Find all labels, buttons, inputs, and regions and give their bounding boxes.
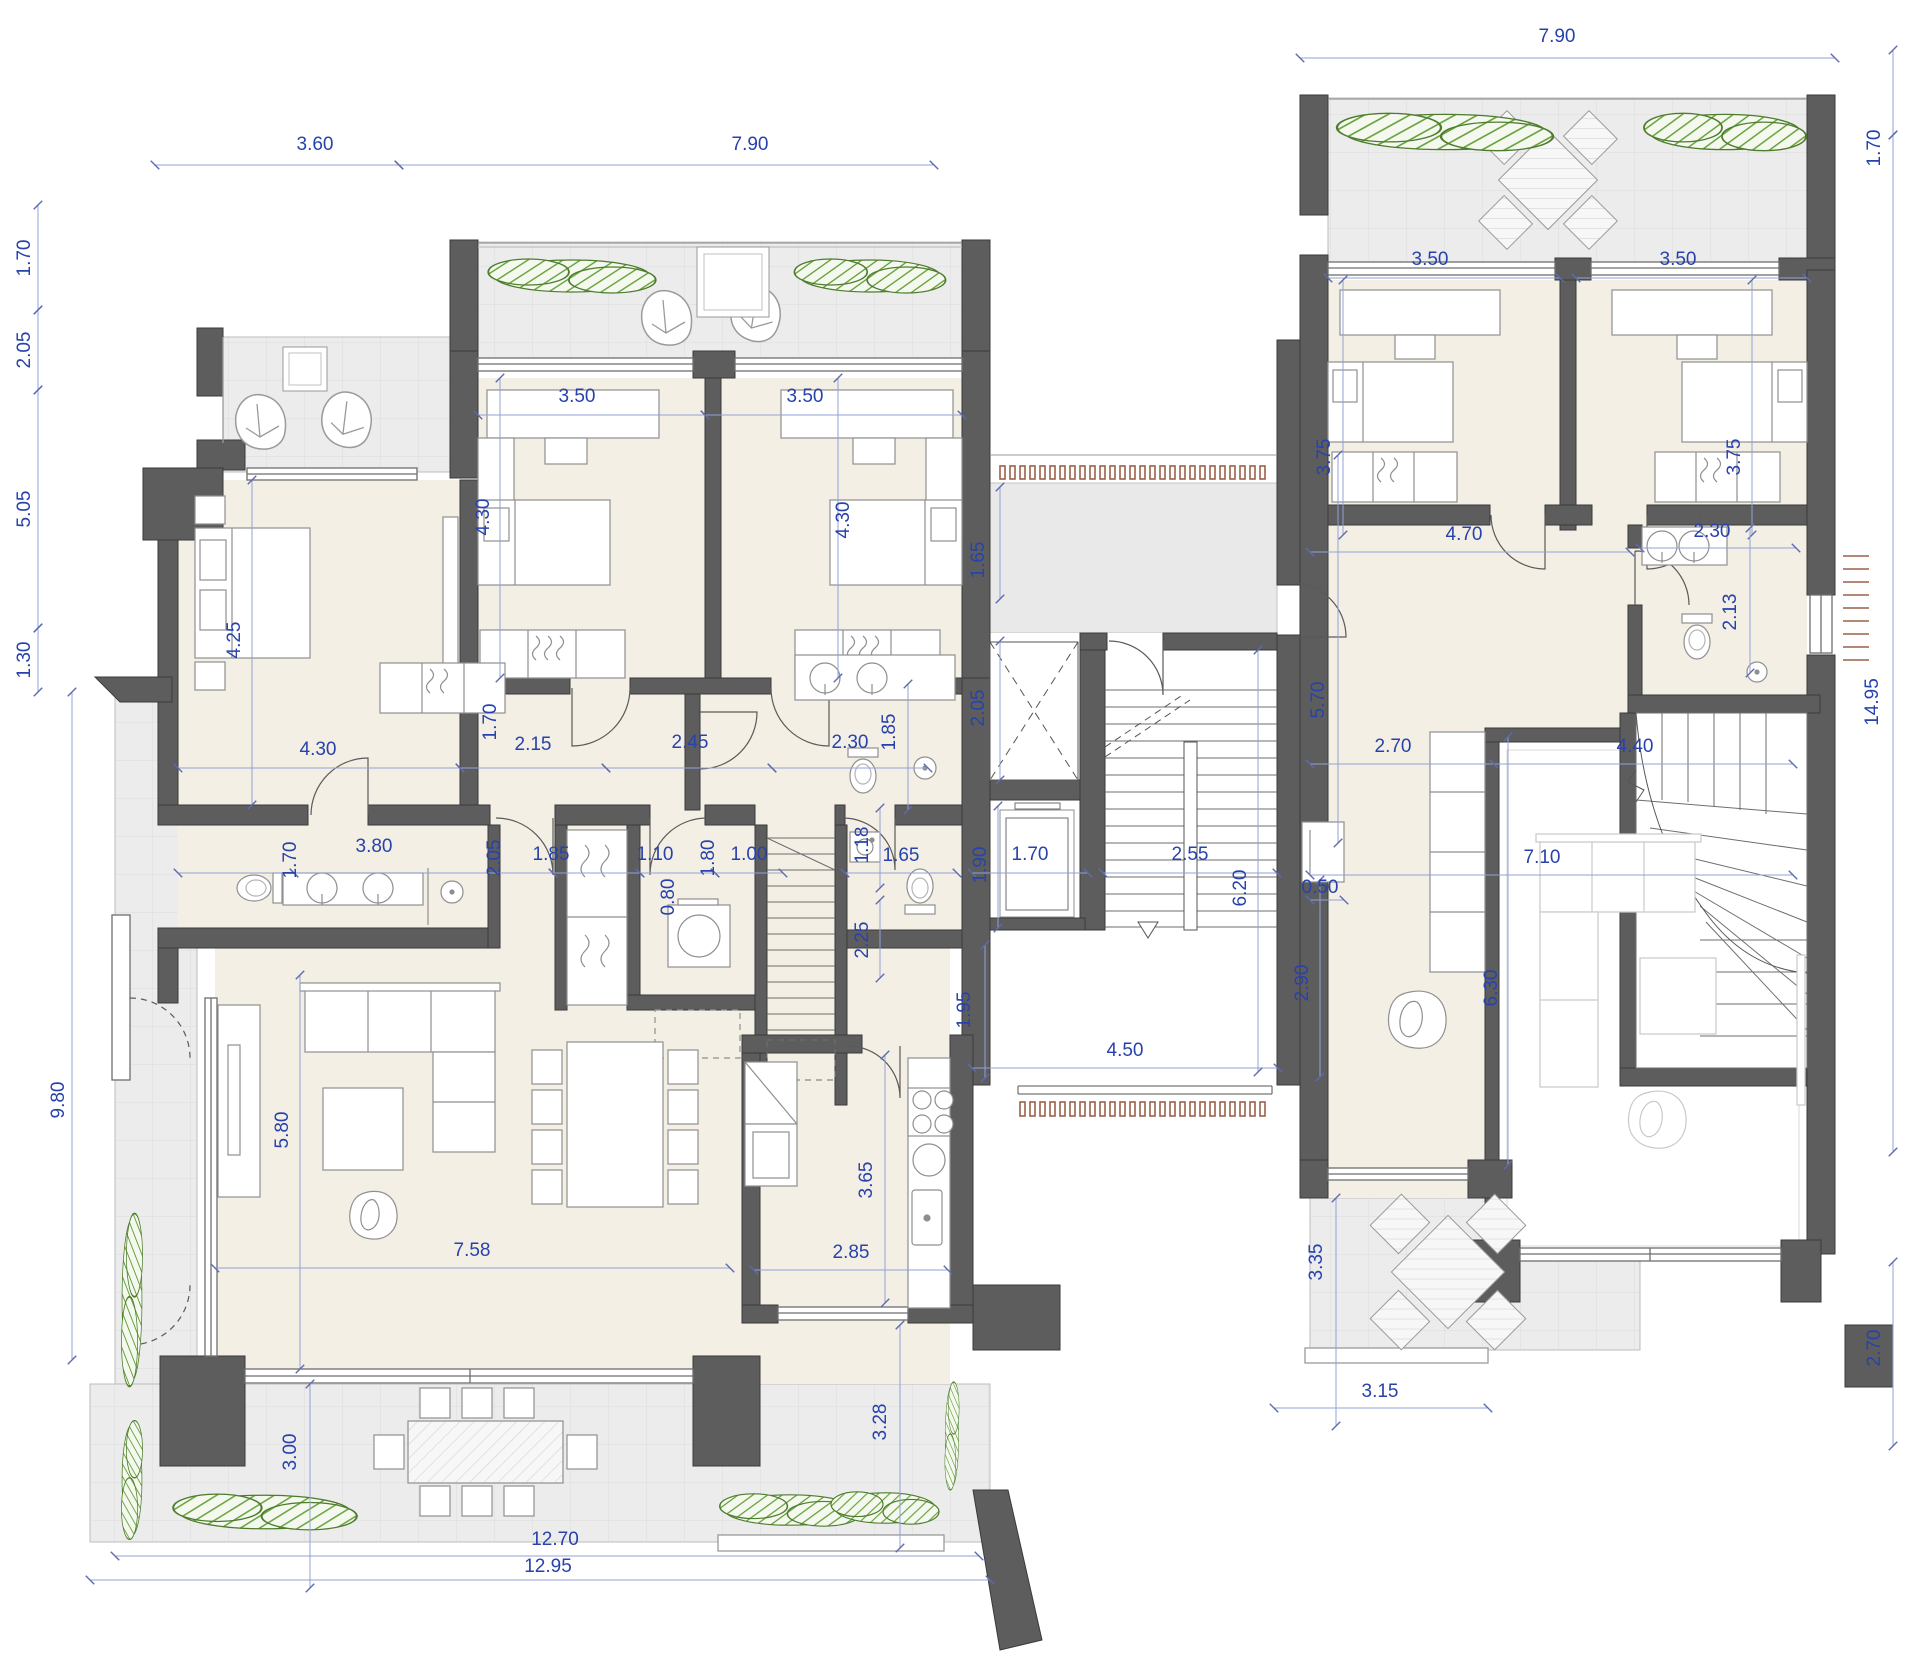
master-wardrobe [443,517,458,667]
deck-tick [1020,1102,1025,1116]
deck-tick [1140,1102,1145,1116]
deck-tick [1100,466,1105,479]
dimension-label: 4.30 [300,739,337,760]
dimension-label: 2.30 [1694,521,1731,542]
deck-tick [1200,466,1205,479]
floor-plan-sheet: 7.903.607.903.503.503.503.504.302.152.45… [0,0,1924,1658]
dimension-label: 4.30 [473,499,494,536]
deck-tick [1080,1102,1085,1116]
bridge-floor [990,390,1277,465]
dimension-label: 3.60 [297,134,334,155]
window [247,468,417,480]
dimension-label: 1.10 [637,844,674,865]
deck-tick-row-bottom [1020,1102,1265,1116]
dimension-label: 1.85 [533,844,570,865]
dimension-label: 3.50 [1660,249,1697,270]
dimension-label: 2.05 [484,840,505,877]
dimension-label: 3.28 [870,1404,891,1441]
dimension-label: 3.75 [1724,439,1745,476]
deck-tick [1250,1102,1255,1116]
dimension-label: 1.65 [968,542,989,579]
deck-tick [1210,466,1215,479]
deck-tick [1160,1102,1165,1116]
deck-tick [1190,1102,1195,1116]
dimension-label: 2.05 [968,690,989,727]
window [778,1307,908,1320]
deck-tick [1220,1102,1225,1116]
dimension-label: 2.55 [1172,844,1209,865]
deck-tick [1110,1102,1115,1116]
dimension-label: 4.70 [1446,524,1483,545]
floor-plan-canvas: 7.903.607.903.503.503.503.504.302.152.45… [0,0,1924,1658]
dimension-label: 3.35 [1306,1244,1327,1281]
dimension-label: 1.18 [852,827,873,864]
dimension-label: 12.70 [531,1529,579,1550]
dimension-label: 5.80 [272,1112,293,1149]
deck-tick [1240,466,1245,479]
dimension-label: 3.50 [787,386,824,407]
deck-tick [1030,1102,1035,1116]
dimension-label: 3.50 [559,386,596,407]
lounge-chair [642,291,692,345]
deck-tick [1180,1102,1185,1116]
deck-tick [1020,466,1025,479]
dimension-label: 1.85 [879,714,900,751]
deck-tick-row-top [1000,466,1265,479]
deck-tick [1040,1102,1045,1116]
bathroom-vanity [795,655,955,700]
deck-tick [1070,466,1075,479]
deck-tick [1050,466,1055,479]
dimension-label: 1.70 [1864,130,1885,167]
dimension-label: 1.80 [698,840,719,877]
deck-tick [1140,466,1145,479]
terrace-table [283,347,327,391]
dimension-label: 1.90 [970,847,991,884]
dimension-label: 3.50 [1412,249,1449,270]
dimension-label: 4.25 [224,622,245,659]
window [1328,1168,1468,1180]
dimension-label: 14.95 [1862,678,1883,726]
deck-tick [1150,1102,1155,1116]
dimension-label: 2.70 [1864,1330,1885,1367]
deck-tick [1070,1102,1075,1116]
entry-walkway [990,483,1277,633]
deck-tick [1260,1102,1265,1116]
dimension-label: 4.30 [833,502,854,539]
dimension-label: 12.95 [524,1556,572,1577]
dimension-label: 9.80 [48,1082,69,1119]
deck-tick [1150,466,1155,479]
dimension-label: 2.45 [672,732,709,753]
deck-tick [1170,1102,1175,1116]
deck-tick [1000,466,1005,479]
tall-wardrobe [567,830,627,1005]
dimension-label: 0.50 [1302,877,1339,898]
dimension-label: 5.05 [14,491,35,528]
dimension-label: 1.70 [480,704,501,741]
dimension-label: 4.40 [1617,736,1654,757]
dimension-label: 1.00 [731,844,768,865]
deck-tick [1090,1102,1095,1116]
tv-unit [218,1005,260,1197]
deck-tick [1060,466,1065,479]
lobby-railing [1018,1086,1272,1094]
deck-tick [1230,1102,1235,1116]
dimension-label: 7.90 [732,134,769,155]
dimension-label: 7.58 [454,1240,491,1261]
dimension-label: 0.80 [658,879,679,916]
dimension-label: 1.70 [1012,844,1049,865]
window [1810,595,1832,653]
window [205,998,217,1356]
deck-tick [1120,1102,1125,1116]
deck-tick [1230,466,1235,479]
deck-tick [1090,466,1095,479]
planter-box [718,1535,944,1551]
deck-tick [1180,466,1185,479]
dimension-label: 3.75 [1314,439,1335,476]
dimension-label: 1.70 [14,240,35,277]
dimension-label: 2.70 [1375,736,1412,757]
dimension-label: 1.30 [14,642,35,679]
dimension-label: 2.85 [833,1242,870,1263]
dimension-label: 7.10 [1524,847,1561,868]
terrace-door-panel [112,915,130,1080]
deck-tick [1030,466,1035,479]
dimension-label: 3.65 [856,1162,877,1199]
deck-tick [1010,466,1015,479]
deck-tick [1080,466,1085,479]
shaft-void [990,642,1078,780]
dimension-label: 2.25 [852,922,873,959]
deck-tick [1170,466,1175,479]
dimension-label: 6.30 [1481,970,1502,1007]
bedroom2-bed [478,500,610,585]
dimension-label: 7.90 [1539,26,1576,47]
dimension-label: 1.65 [883,845,920,866]
toilet [848,748,878,793]
deck-tick [1240,1102,1245,1116]
window [735,358,962,371]
deck-tick [1210,1102,1215,1116]
dimension-label: 5.70 [1308,682,1329,719]
dimension-label: 2.13 [1720,594,1741,631]
sliding-door [1520,1248,1781,1261]
deck-tick [1040,466,1045,479]
dimension-label: 3.15 [1362,1381,1399,1402]
deck-tick [1190,466,1195,479]
dining-table [532,1042,698,1207]
deck-tick [1130,466,1135,479]
window [478,358,693,371]
deck-tick [1120,466,1125,479]
planter-square [697,247,769,317]
deck-tick [1130,1102,1135,1116]
dimension-label: 2.05 [14,332,35,369]
dimension-label: 4.50 [1107,1040,1144,1061]
deck-tick [1100,1102,1105,1116]
dimension-label: 1.70 [280,842,301,879]
deck-tick [1200,1102,1205,1116]
dimension-label: 2.30 [832,732,869,753]
deck-tick [1260,466,1265,479]
dimension-label: 2.90 [1292,965,1313,1002]
dimension-label: 2.15 [515,734,552,755]
coffee-table [323,1088,403,1170]
deck-tick [1060,1102,1065,1116]
deck-tick [1220,466,1225,479]
dimension-label: 3.80 [356,836,393,857]
deck-tick [1110,466,1115,479]
lounge-chair [236,395,286,449]
armchair [350,1191,397,1239]
dimension-label: 3.00 [280,1434,301,1471]
dimension-label: 6.20 [1230,870,1251,907]
right-armchair [1389,991,1447,1048]
deck-tick [1050,1102,1055,1116]
deck-tick [1160,466,1165,479]
dimension-label: 1.95 [954,992,975,1029]
deck-tick [1250,466,1255,479]
trellis-right [1843,556,1869,660]
terrace-planter-edge [1305,1348,1488,1363]
